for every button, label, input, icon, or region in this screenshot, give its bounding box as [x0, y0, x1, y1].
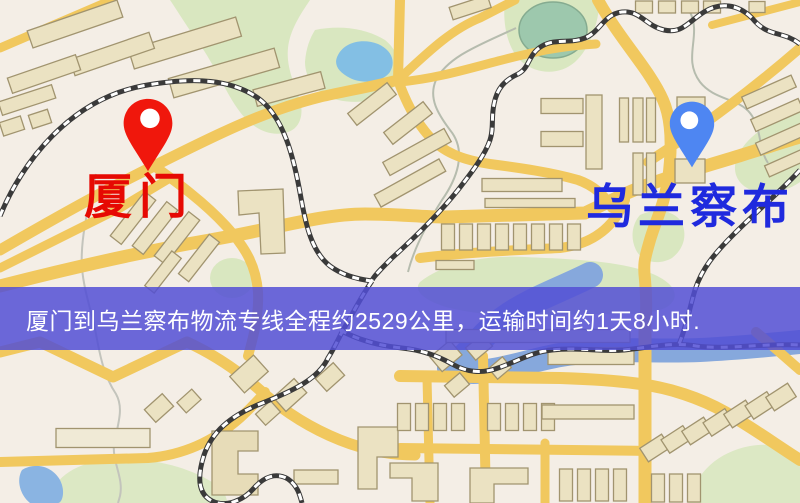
- map-canvas: [0, 0, 800, 503]
- origin-pin-hole: [140, 109, 160, 129]
- route-info-banner: 厦门到乌兰察布物流专线全程约2529公里，运输时间约1天8小时.: [0, 287, 800, 350]
- origin-city-label: 厦门: [84, 174, 194, 222]
- map-container: 厦门 乌兰察布 厦门到乌兰察布物流专线全程约2529公里，运输时间约1天8小时.: [0, 0, 800, 503]
- destination-pin-shape: [670, 102, 714, 168]
- origin-map-pin-icon: [118, 96, 178, 174]
- destination-map-pin-icon: [665, 99, 719, 170]
- destination-city-label: 乌兰察布: [586, 183, 794, 230]
- route-info-text: 厦门到乌兰察布物流专线全程约2529公里，运输时间约1天8小时.: [0, 302, 700, 336]
- destination-pin-hole: [680, 111, 698, 129]
